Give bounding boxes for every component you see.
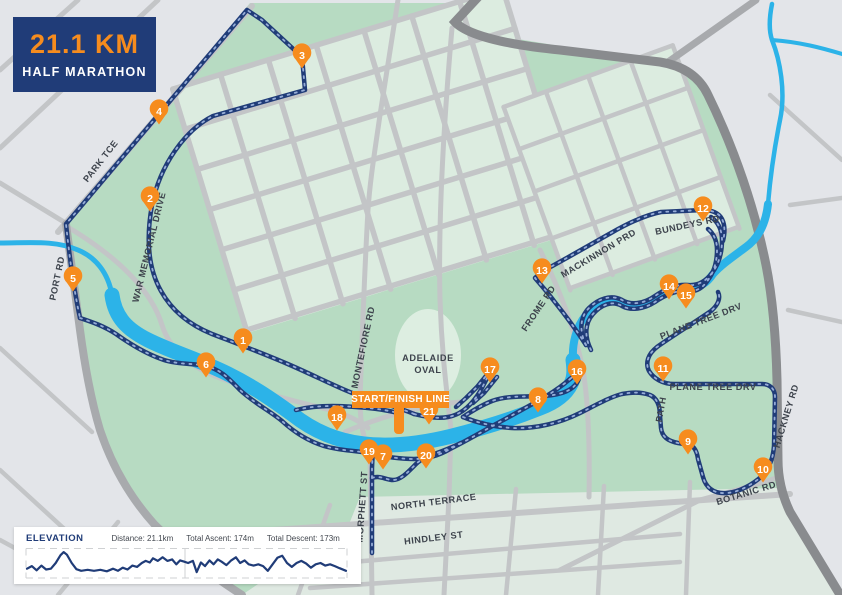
- start-finish-label: START/FINISH LINE: [352, 391, 449, 408]
- marker-number: 14: [663, 281, 675, 293]
- oval-label-line2: OVAL: [414, 365, 441, 375]
- half-marathon-course-map: PARK TCEWAR MEMORIAL DRIVEPORT RDMONTEFI…: [0, 0, 842, 595]
- marker-number: 7: [380, 451, 386, 463]
- marker-number: 16: [571, 366, 583, 378]
- elevation-chart: [25, 547, 349, 580]
- elevation-stats: Distance: 21.1km Total Ascent: 174m Tota…: [111, 534, 339, 543]
- marker-number: 20: [420, 450, 432, 462]
- marker-number: 12: [697, 203, 709, 215]
- marker-number: 2: [147, 193, 153, 205]
- marker-number: 5: [70, 273, 76, 285]
- oval-label-line1: ADELAIDE: [402, 353, 454, 363]
- marker-number: 13: [536, 265, 548, 277]
- marker-number: 18: [331, 412, 343, 424]
- marker-number: 15: [680, 290, 692, 302]
- elevation-profile-line: [27, 552, 346, 572]
- marker-number: 10: [757, 464, 769, 476]
- marker-number: 17: [484, 364, 496, 376]
- marker-number: 6: [203, 359, 209, 371]
- elevation-stat-descent: Total Descent: 173m: [267, 534, 340, 543]
- marker-number: 4: [156, 106, 162, 118]
- marker-number: 1: [240, 335, 246, 347]
- route-direction-dashes: [372, 446, 373, 553]
- street-label: PLANE TREE DRV: [670, 382, 757, 392]
- event-title-card: 21.1 KM HALF MARATHON: [13, 17, 156, 92]
- marker-number: 9: [685, 436, 691, 448]
- marker-number: 8: [535, 394, 541, 406]
- event-distance: 21.1 KM: [30, 31, 139, 58]
- marker-number: 11: [657, 363, 668, 375]
- elevation-stat-ascent: Total Ascent: 174m: [186, 534, 254, 543]
- elevation-title: ELEVATION: [26, 533, 83, 544]
- elevation-stat-distance: Distance: 21.1km: [111, 534, 173, 543]
- elevation-panel: ELEVATION Distance: 21.1km Total Ascent:…: [14, 527, 361, 584]
- event-name: HALF MARATHON: [22, 65, 146, 79]
- marker-number: 3: [299, 50, 305, 62]
- marker-number: 19: [363, 446, 375, 458]
